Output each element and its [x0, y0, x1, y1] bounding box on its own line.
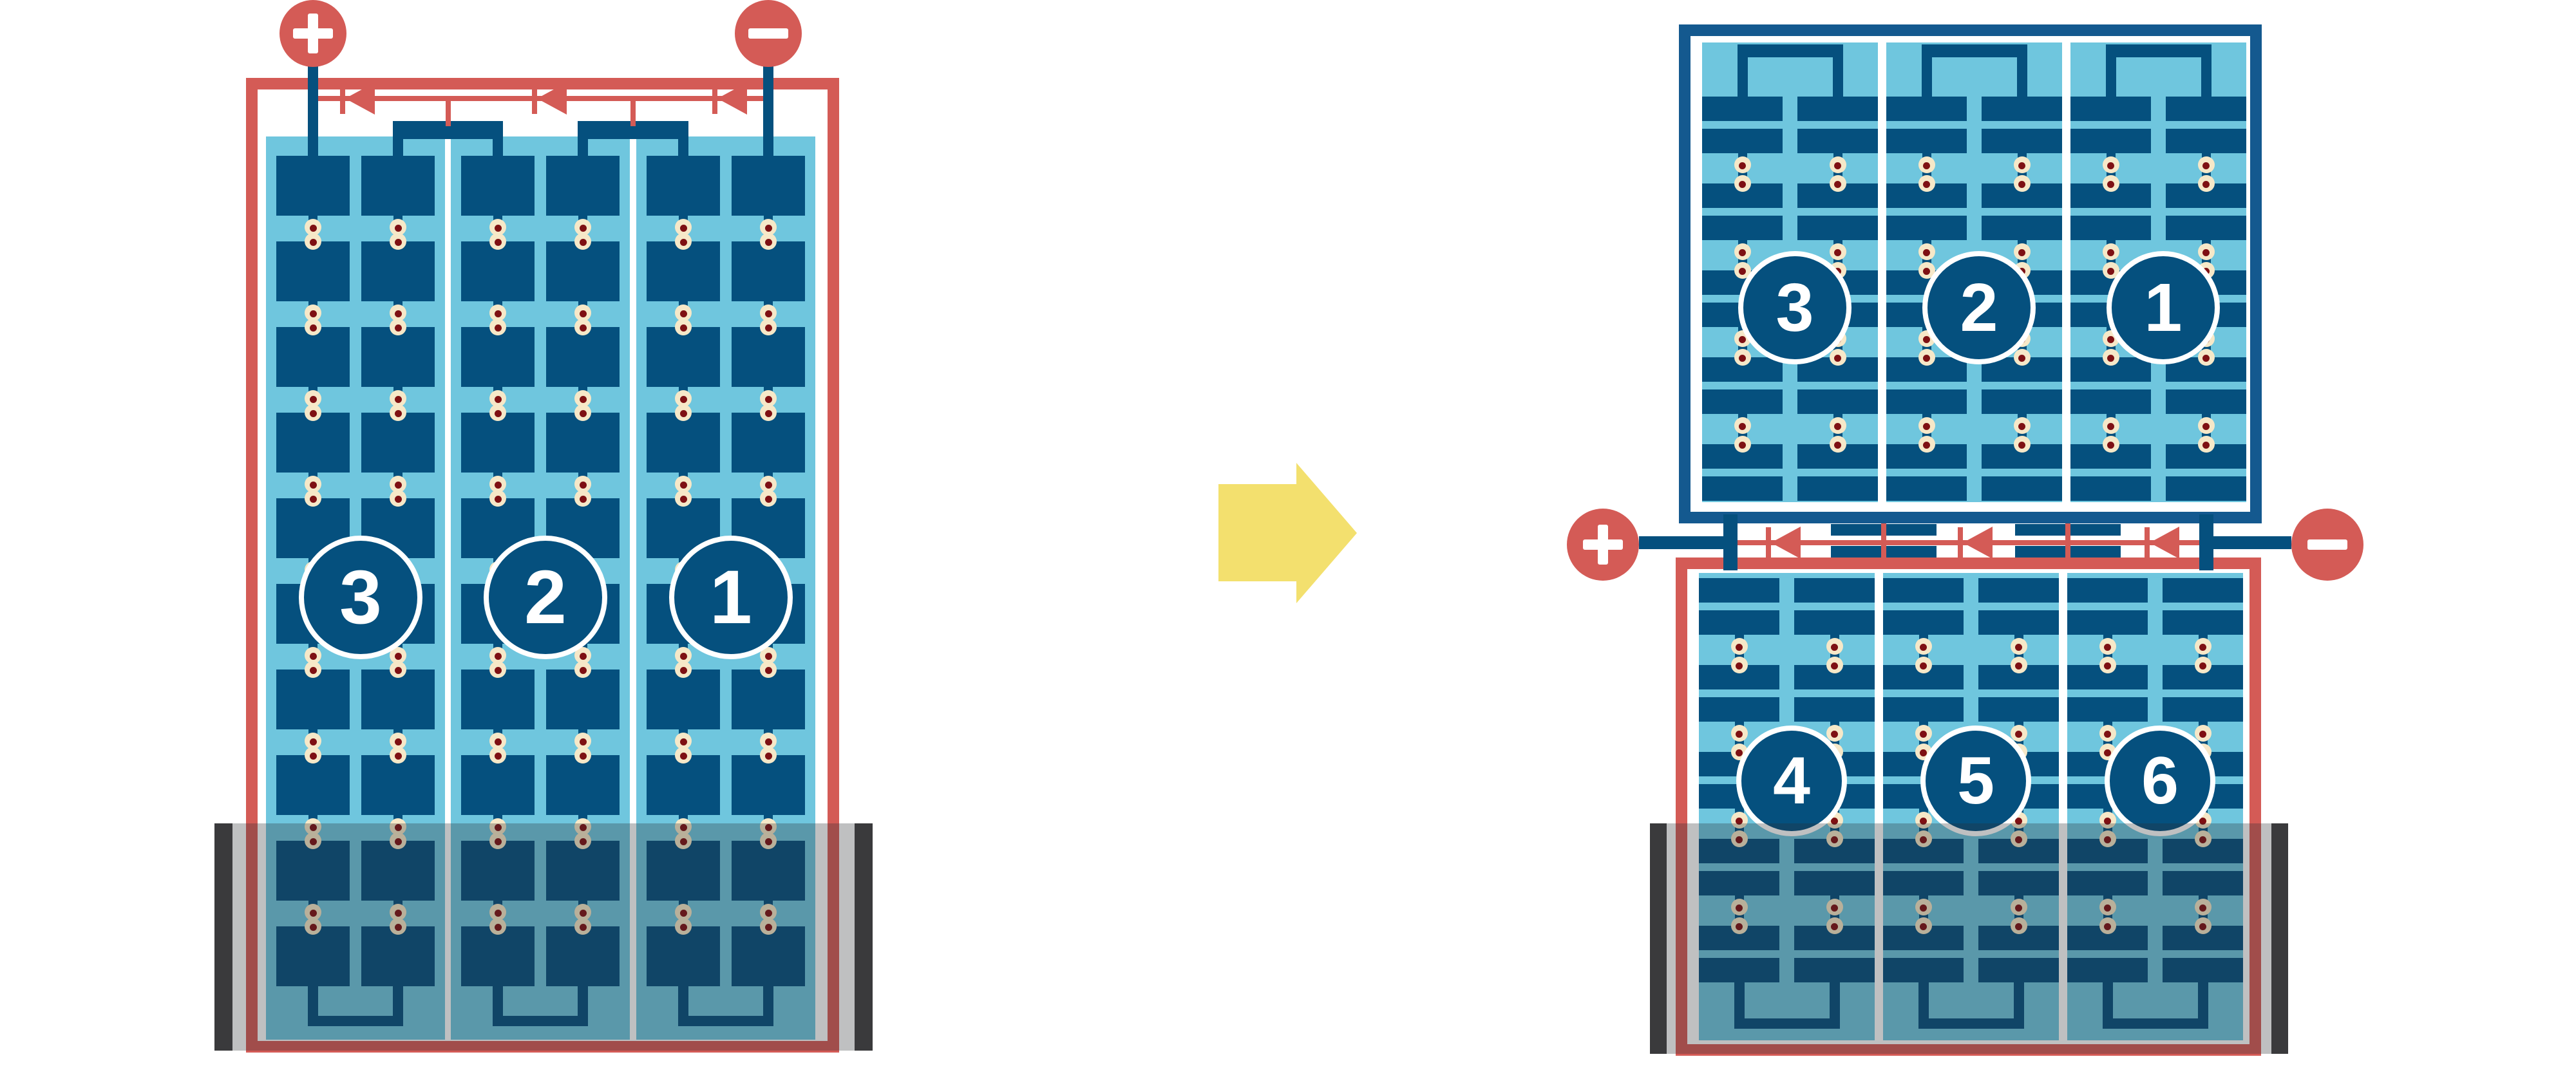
solar-cell — [546, 670, 620, 729]
solder-point-core — [395, 310, 402, 317]
solder-point-core — [580, 225, 587, 232]
diode-tap — [1881, 523, 1886, 557]
solder-point-core — [680, 496, 687, 503]
solder-point-core — [495, 753, 502, 760]
string-circle-label: 5 — [1920, 726, 2031, 836]
bypass-diode-3-triangle — [717, 82, 747, 115]
diode-tap — [2065, 523, 2070, 557]
solder-point-core — [680, 753, 687, 760]
solder-point-core — [765, 482, 772, 489]
solder-point-core — [765, 738, 772, 745]
diagram-canvas: 321321456 — [0, 0, 2576, 1068]
solder-point-core — [310, 396, 317, 403]
solder-point-core — [765, 667, 772, 674]
solder-point-core — [395, 753, 402, 760]
string-circle-label: 2 — [484, 536, 607, 659]
solder-point-core — [2018, 249, 2025, 256]
negative-lead-wire — [2213, 536, 2291, 549]
solder-point-core — [310, 482, 317, 489]
solder-point-core — [495, 482, 502, 489]
solder-point-core — [580, 667, 587, 674]
solder-point-core — [495, 410, 502, 417]
solder-point-core — [1739, 249, 1746, 256]
solder-point-core — [2107, 423, 2114, 430]
solder-point-core — [2107, 355, 2114, 362]
solar-half-cell — [1883, 578, 1964, 603]
solder-point-core — [495, 324, 502, 332]
bypass-diode-2-triangle — [537, 82, 567, 115]
bypass-diode-2-bar — [1958, 527, 1963, 558]
solar-cell — [647, 670, 720, 729]
solder-point-core — [1834, 355, 1841, 362]
string-circle-label: 3 — [299, 536, 422, 659]
solder-point-core — [580, 324, 587, 332]
top-bus-leg — [2106, 55, 2116, 99]
solder-point-core — [2199, 644, 2206, 651]
solder-point-core — [680, 239, 687, 246]
solder-point-core — [1834, 423, 1841, 430]
top-bridge-bus-leg — [493, 139, 503, 169]
solder-point-core — [2199, 731, 2206, 738]
solder-point-core — [310, 753, 317, 760]
right-arrow-icon — [1218, 484, 1296, 581]
solder-point-core — [2107, 162, 2114, 169]
shading-overlay-right — [1650, 823, 2288, 1054]
solder-point-core — [1736, 749, 1743, 756]
string-circle-label: 4 — [1736, 726, 1847, 836]
top-bridge-bus-leg — [678, 139, 688, 169]
solder-point-core — [765, 239, 772, 246]
string-circle-label: 1 — [2107, 251, 2220, 364]
solder-point-core — [495, 225, 502, 232]
solder-point-core — [495, 239, 502, 246]
shading-overlay-right-left-edge-bar — [1650, 823, 1667, 1054]
solar-cell — [647, 413, 720, 473]
solder-point-core — [2015, 662, 2022, 670]
bypass-diode-1-triangle — [345, 82, 375, 115]
bypass-diode-1-bar — [1766, 527, 1771, 558]
solar-half-cell — [1886, 97, 1967, 121]
minus-terminal-bar — [748, 28, 788, 39]
bypass-diode-1-triangle — [1771, 527, 1801, 559]
solder-point-core — [1831, 644, 1838, 651]
bypass-diode-3-bar — [2145, 527, 2150, 558]
solder-point-core — [1831, 731, 1838, 738]
solar-cell — [461, 755, 535, 815]
solder-point-core — [2018, 181, 2025, 188]
solar-half-cell — [2166, 476, 2246, 501]
solder-point-core — [680, 738, 687, 745]
solder-point-core — [395, 496, 402, 503]
solder-point-core — [2202, 355, 2210, 362]
solder-point-core — [2107, 442, 2114, 449]
solder-point-core — [765, 324, 772, 332]
solar-cell — [546, 755, 620, 815]
junction-right-riser — [2199, 514, 2213, 570]
solder-point-core — [1923, 423, 1930, 430]
minus-terminal-bar — [2307, 539, 2347, 550]
solder-point-core — [310, 496, 317, 503]
string-circle-label: 2 — [1922, 251, 2036, 364]
solder-point-core — [765, 410, 772, 417]
solar-half-cell — [1797, 97, 1878, 121]
string-circle-label: 1 — [669, 536, 793, 659]
solar-half-cell — [1797, 476, 1878, 501]
solder-point-core — [765, 496, 772, 503]
solder-point-core — [765, 310, 772, 317]
solder-point-core — [1923, 181, 1930, 188]
solar-half-cell — [1982, 97, 2062, 121]
solder-point-core — [495, 738, 502, 745]
solar-cell — [647, 327, 720, 387]
top-bus-leg — [1833, 55, 1843, 99]
solder-point-core — [310, 653, 317, 660]
junction-left-riser — [1723, 514, 1738, 570]
solder-point-core — [2202, 442, 2210, 449]
solar-half-cell — [2067, 578, 2148, 603]
solder-point-core — [2104, 731, 2111, 738]
solar-half-cell — [1886, 476, 1967, 501]
solder-point-core — [1923, 442, 1930, 449]
plus-terminal-bar-v — [308, 14, 318, 53]
solar-half-cell — [1699, 578, 1779, 603]
solder-point-core — [310, 738, 317, 745]
solder-point-core — [2202, 249, 2210, 256]
solder-point-core — [2018, 442, 2025, 449]
solar-cell — [276, 413, 350, 473]
top-bus-bar — [2106, 44, 2211, 57]
bypass-diode-3-bar — [712, 83, 717, 114]
solder-point-core — [1739, 268, 1746, 275]
solder-point-core — [395, 738, 402, 745]
solder-point-core — [580, 410, 587, 417]
solder-point-core — [580, 396, 587, 403]
solder-point-core — [2107, 336, 2114, 343]
solder-point-core — [2107, 268, 2114, 275]
solar-half-cell — [2070, 97, 2151, 121]
solder-point-core — [1834, 442, 1841, 449]
solder-point-core — [395, 482, 402, 489]
solder-point-core — [580, 653, 587, 660]
solar-half-cell — [2070, 476, 2151, 501]
solder-point-core — [1834, 181, 1841, 188]
solar-cell — [461, 241, 535, 301]
shading-overlay-left-right-edge-bar — [855, 823, 873, 1051]
solder-point-core — [580, 482, 587, 489]
solar-cell — [276, 670, 350, 729]
solar-half-cell — [2163, 578, 2243, 603]
solder-point-core — [2104, 749, 2111, 756]
solder-point-core — [1831, 662, 1838, 670]
string-circle-label: 3 — [1738, 251, 1851, 364]
solder-point-core — [395, 225, 402, 232]
solder-point-core — [2202, 423, 2210, 430]
top-bus-bar — [1738, 44, 1843, 57]
solder-point-core — [2015, 731, 2022, 738]
solder-point-core — [310, 667, 317, 674]
solar-cell — [361, 241, 435, 301]
solder-point-core — [1739, 181, 1746, 188]
solar-cell — [647, 241, 720, 301]
solar-cell — [647, 755, 720, 815]
solder-point-core — [310, 225, 317, 232]
solder-point-core — [680, 225, 687, 232]
bypass-diode-1-bar — [340, 83, 345, 114]
diode-tap — [446, 101, 451, 126]
shading-overlay-right-right-edge-bar — [2271, 823, 2288, 1054]
solar-cell — [361, 755, 435, 815]
solder-point-core — [310, 324, 317, 332]
solar-half-cell — [1978, 578, 2059, 603]
solder-point-core — [1834, 162, 1841, 169]
solder-point-core — [2202, 181, 2210, 188]
solar-cell — [461, 670, 535, 729]
solder-point-core — [1736, 644, 1743, 651]
solder-point-core — [395, 396, 402, 403]
solder-point-core — [2199, 662, 2206, 670]
bypass-diode-2-bar — [532, 83, 537, 114]
shading-overlay-left — [214, 823, 873, 1051]
top-bus-leg — [2201, 55, 2211, 99]
solar-half-cell — [1702, 97, 1783, 121]
solar-half-cell — [1794, 578, 1875, 603]
solder-point-core — [580, 738, 587, 745]
solar-cell — [461, 327, 535, 387]
solder-point-core — [395, 324, 402, 332]
solder-point-core — [2107, 249, 2114, 256]
solar-cell — [361, 413, 435, 473]
solder-point-core — [395, 653, 402, 660]
solar-half-cell — [2166, 97, 2246, 121]
solder-point-core — [1920, 662, 1927, 670]
solder-point-core — [680, 667, 687, 674]
top-bridge-bus-leg — [578, 139, 588, 169]
solder-point-core — [1923, 249, 1930, 256]
solder-point-core — [765, 225, 772, 232]
bypass-diode-2-triangle — [1963, 527, 1993, 559]
solar-cell — [732, 327, 805, 387]
solder-point-core — [495, 496, 502, 503]
solar-cell — [546, 241, 620, 301]
solder-point-core — [1739, 355, 1746, 362]
solder-point-core — [1739, 336, 1746, 343]
solder-point-core — [1736, 731, 1743, 738]
solder-point-core — [765, 753, 772, 760]
solar-cell — [276, 755, 350, 815]
string-circle-label: 6 — [2105, 726, 2215, 836]
solder-point-core — [310, 410, 317, 417]
top-bus-leg — [1738, 55, 1748, 99]
solar-cell — [732, 241, 805, 301]
solder-point-core — [495, 653, 502, 660]
solar-cell — [276, 327, 350, 387]
solar-cell — [732, 413, 805, 473]
solder-point-core — [2015, 644, 2022, 651]
solder-point-core — [680, 396, 687, 403]
solar-cell — [732, 755, 805, 815]
solar-cell — [546, 413, 620, 473]
solder-point-core — [1920, 644, 1927, 651]
plus-terminal-bar-v — [1598, 525, 1608, 565]
solder-point-core — [680, 324, 687, 332]
solder-point-core — [680, 653, 687, 660]
solder-point-core — [1834, 249, 1841, 256]
solder-point-core — [2018, 423, 2025, 430]
solder-point-core — [580, 310, 587, 317]
solder-point-core — [580, 753, 587, 760]
solder-point-core — [395, 239, 402, 246]
shading-overlay-left-left-edge-bar — [214, 823, 232, 1051]
solder-point-core — [1923, 355, 1930, 362]
solder-point-core — [1920, 749, 1927, 756]
solder-point-core — [495, 396, 502, 403]
solder-point-core — [680, 410, 687, 417]
solar-cell — [732, 670, 805, 729]
solder-point-core — [495, 667, 502, 674]
right-arrow-icon-head — [1296, 463, 1357, 603]
top-bridge-bus-leg — [393, 139, 403, 169]
positive-lead-wire — [1639, 536, 1723, 549]
solder-point-core — [1739, 423, 1746, 430]
diode-tap — [630, 101, 636, 126]
top-bus-bar — [1922, 44, 2027, 57]
solder-point-core — [680, 482, 687, 489]
solder-point-core — [1923, 268, 1930, 275]
top-bus-leg — [1922, 55, 1932, 99]
solder-point-core — [2018, 355, 2025, 362]
solder-point-core — [395, 667, 402, 674]
solder-point-core — [1736, 662, 1743, 670]
solder-point-core — [395, 410, 402, 417]
solder-point-core — [1923, 162, 1930, 169]
solder-point-core — [1739, 442, 1746, 449]
solder-point-core — [765, 396, 772, 403]
solder-point-core — [580, 239, 587, 246]
solder-point-core — [580, 496, 587, 503]
solar-cell — [461, 413, 535, 473]
bypass-diode-3-triangle — [2150, 527, 2179, 559]
solder-point-core — [1923, 336, 1930, 343]
solder-point-core — [2104, 644, 2111, 651]
solder-point-core — [2202, 162, 2210, 169]
solder-point-core — [680, 310, 687, 317]
solder-point-core — [2018, 162, 2025, 169]
solder-point-core — [1739, 162, 1746, 169]
solar-cell — [546, 327, 620, 387]
solar-half-cell — [1702, 476, 1783, 501]
solder-point-core — [310, 310, 317, 317]
solder-point-core — [310, 239, 317, 246]
solder-point-core — [765, 653, 772, 660]
solder-point-core — [1920, 731, 1927, 738]
solar-half-cell — [1982, 476, 2062, 501]
solder-point-core — [495, 310, 502, 317]
solar-cell — [361, 327, 435, 387]
solar-cell — [276, 241, 350, 301]
solder-point-core — [2107, 181, 2114, 188]
solar-cell — [361, 670, 435, 729]
top-bus-leg — [2017, 55, 2027, 99]
solder-point-core — [2104, 662, 2111, 670]
